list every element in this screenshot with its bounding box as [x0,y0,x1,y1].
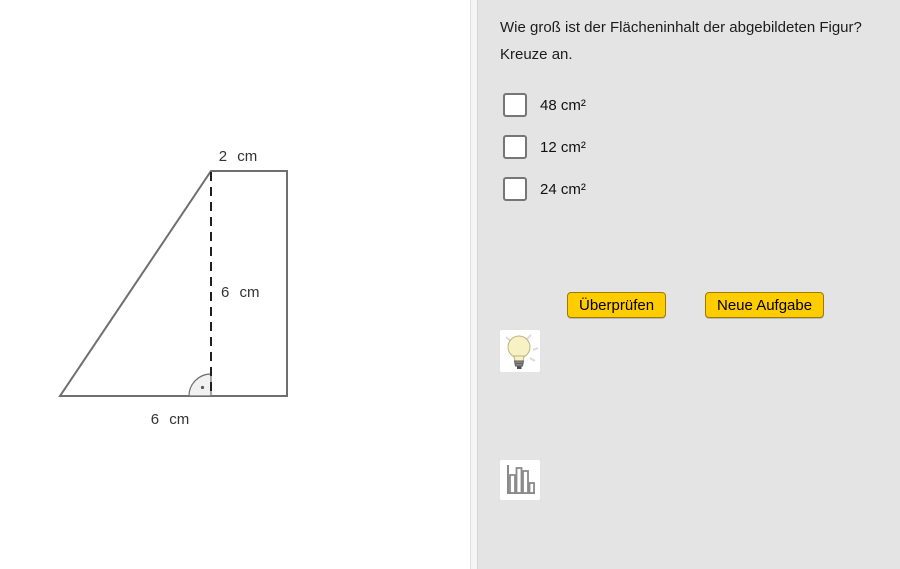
height-label: 6 cm [221,284,260,301]
panel-splitter[interactable] [470,0,478,569]
option-label-3: 24 cm² [540,181,586,198]
app-window: 2 cm 6 cm 6 cm Wie groß ist der Flächeni… [0,0,900,569]
question-panel: Wie groß ist der Flächeninhalt der abgeb… [478,0,900,569]
new-task-button[interactable]: Neue Aufgabe [705,292,824,318]
trapezoid-figure: 2 cm 6 cm 6 cm [0,0,470,569]
answer-options: 48 cm² 12 cm² 24 cm² [503,93,586,219]
stats-button[interactable] [500,460,540,500]
answer-option-row: 24 cm² [503,177,586,201]
question-line2: Kreuze an. [500,41,892,68]
checkbox-option-2[interactable] [503,135,527,159]
bar-chart-icon [500,460,540,500]
base-side-label: 6 cm [151,411,190,428]
checkbox-option-3[interactable] [503,177,527,201]
check-button[interactable]: Überprüfen [567,292,666,318]
checkbox-option-1[interactable] [503,93,527,117]
option-label-2: 12 cm² [540,139,586,156]
answer-option-row: 12 cm² [503,135,586,159]
geometry-canvas: 2 cm 6 cm 6 cm [0,0,470,569]
answer-option-row: 48 cm² [503,93,586,117]
hint-button[interactable] [500,330,540,372]
question-line1: Wie groß ist der Flächeninhalt der abgeb… [500,14,892,41]
option-label-1: 48 cm² [540,97,586,114]
lightbulb-icon [500,330,540,372]
top-side-label: 2 cm [219,148,258,165]
question-text: Wie groß ist der Flächeninhalt der abgeb… [500,14,892,68]
right-angle-dot [201,386,204,389]
